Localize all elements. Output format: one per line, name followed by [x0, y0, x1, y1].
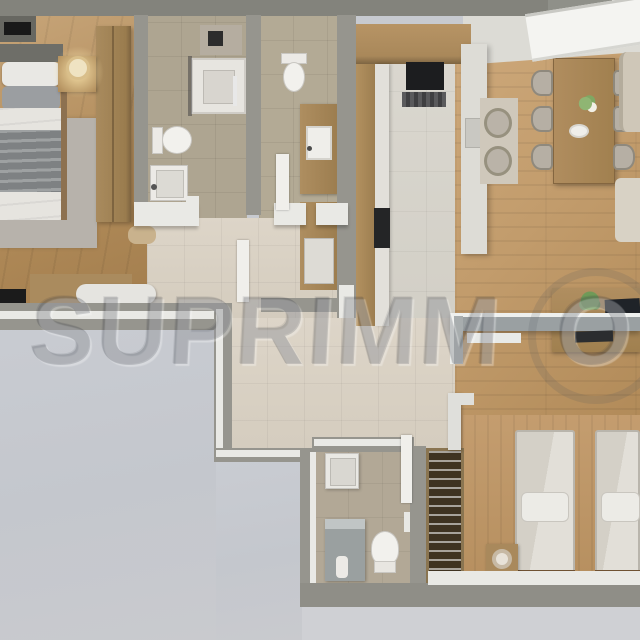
oven	[406, 62, 444, 90]
shower-column	[336, 556, 348, 578]
dining-chair	[531, 106, 553, 132]
bath1-partition-return	[186, 196, 199, 226]
flower-vase	[575, 94, 601, 118]
wall-bath2-kitchen	[337, 15, 356, 318]
wall-terrace-south-cap	[216, 450, 312, 457]
wall-jog-living-top	[448, 393, 474, 405]
sofa	[619, 52, 640, 132]
sofa-chaise	[615, 178, 640, 242]
dining-chair	[613, 144, 635, 170]
wall-bath3-west-cap	[310, 452, 316, 587]
bed1-pillow	[521, 492, 569, 522]
cooktop	[374, 208, 390, 248]
wall-bottom	[300, 583, 640, 607]
bed2-pillow	[601, 492, 640, 522]
wall-bedroom-bath	[134, 15, 148, 220]
shower-drain	[203, 70, 235, 104]
faucet1	[151, 184, 157, 190]
wall-bath1-bath2	[246, 15, 261, 215]
wall-bath3-top-cap	[314, 439, 412, 446]
washbasin2	[306, 126, 332, 160]
open-wardrobe	[426, 448, 464, 585]
washbasin1-bowl	[156, 170, 184, 198]
plate	[569, 124, 589, 138]
kitchen-upper-cabinets	[353, 24, 471, 64]
wall-bath3-east	[410, 446, 426, 585]
toilet2-bowl	[283, 62, 305, 92]
terrace-roof-slab-2	[216, 458, 302, 640]
table-lamp	[66, 56, 90, 80]
bath3-door-leaf	[401, 435, 412, 503]
pouf	[128, 226, 156, 244]
bath2-partition-cap-right	[316, 203, 348, 225]
toilet3-base	[374, 561, 396, 573]
towel-rail1	[233, 76, 237, 106]
shower-glass	[188, 56, 192, 116]
bath1-door-leaf	[276, 154, 289, 210]
wardrobe-door-seam	[112, 26, 114, 222]
toilet1-bowl	[162, 126, 192, 154]
armchair	[484, 146, 512, 176]
bed-gray-blanket	[0, 130, 65, 192]
laptop	[0, 289, 26, 303]
shelf-books	[4, 22, 31, 35]
window-sill-south	[428, 571, 640, 585]
dining-table	[553, 58, 615, 184]
shower-head	[208, 31, 223, 46]
watermark-text: SUPRIMM	[27, 282, 504, 379]
watermark-letter-o: O	[553, 282, 636, 379]
washbasin3-bowl	[330, 458, 356, 486]
dining-chair	[531, 144, 553, 170]
cooker-hood	[402, 92, 446, 107]
round-lamp	[492, 549, 512, 569]
faucet2	[307, 146, 312, 151]
outside-bottom-strip	[302, 605, 640, 640]
dining-chair	[531, 70, 553, 96]
toilet3-bowl	[371, 531, 399, 565]
floor-plan-render: SUPRIMM O	[0, 0, 640, 640]
armchair	[484, 108, 512, 138]
